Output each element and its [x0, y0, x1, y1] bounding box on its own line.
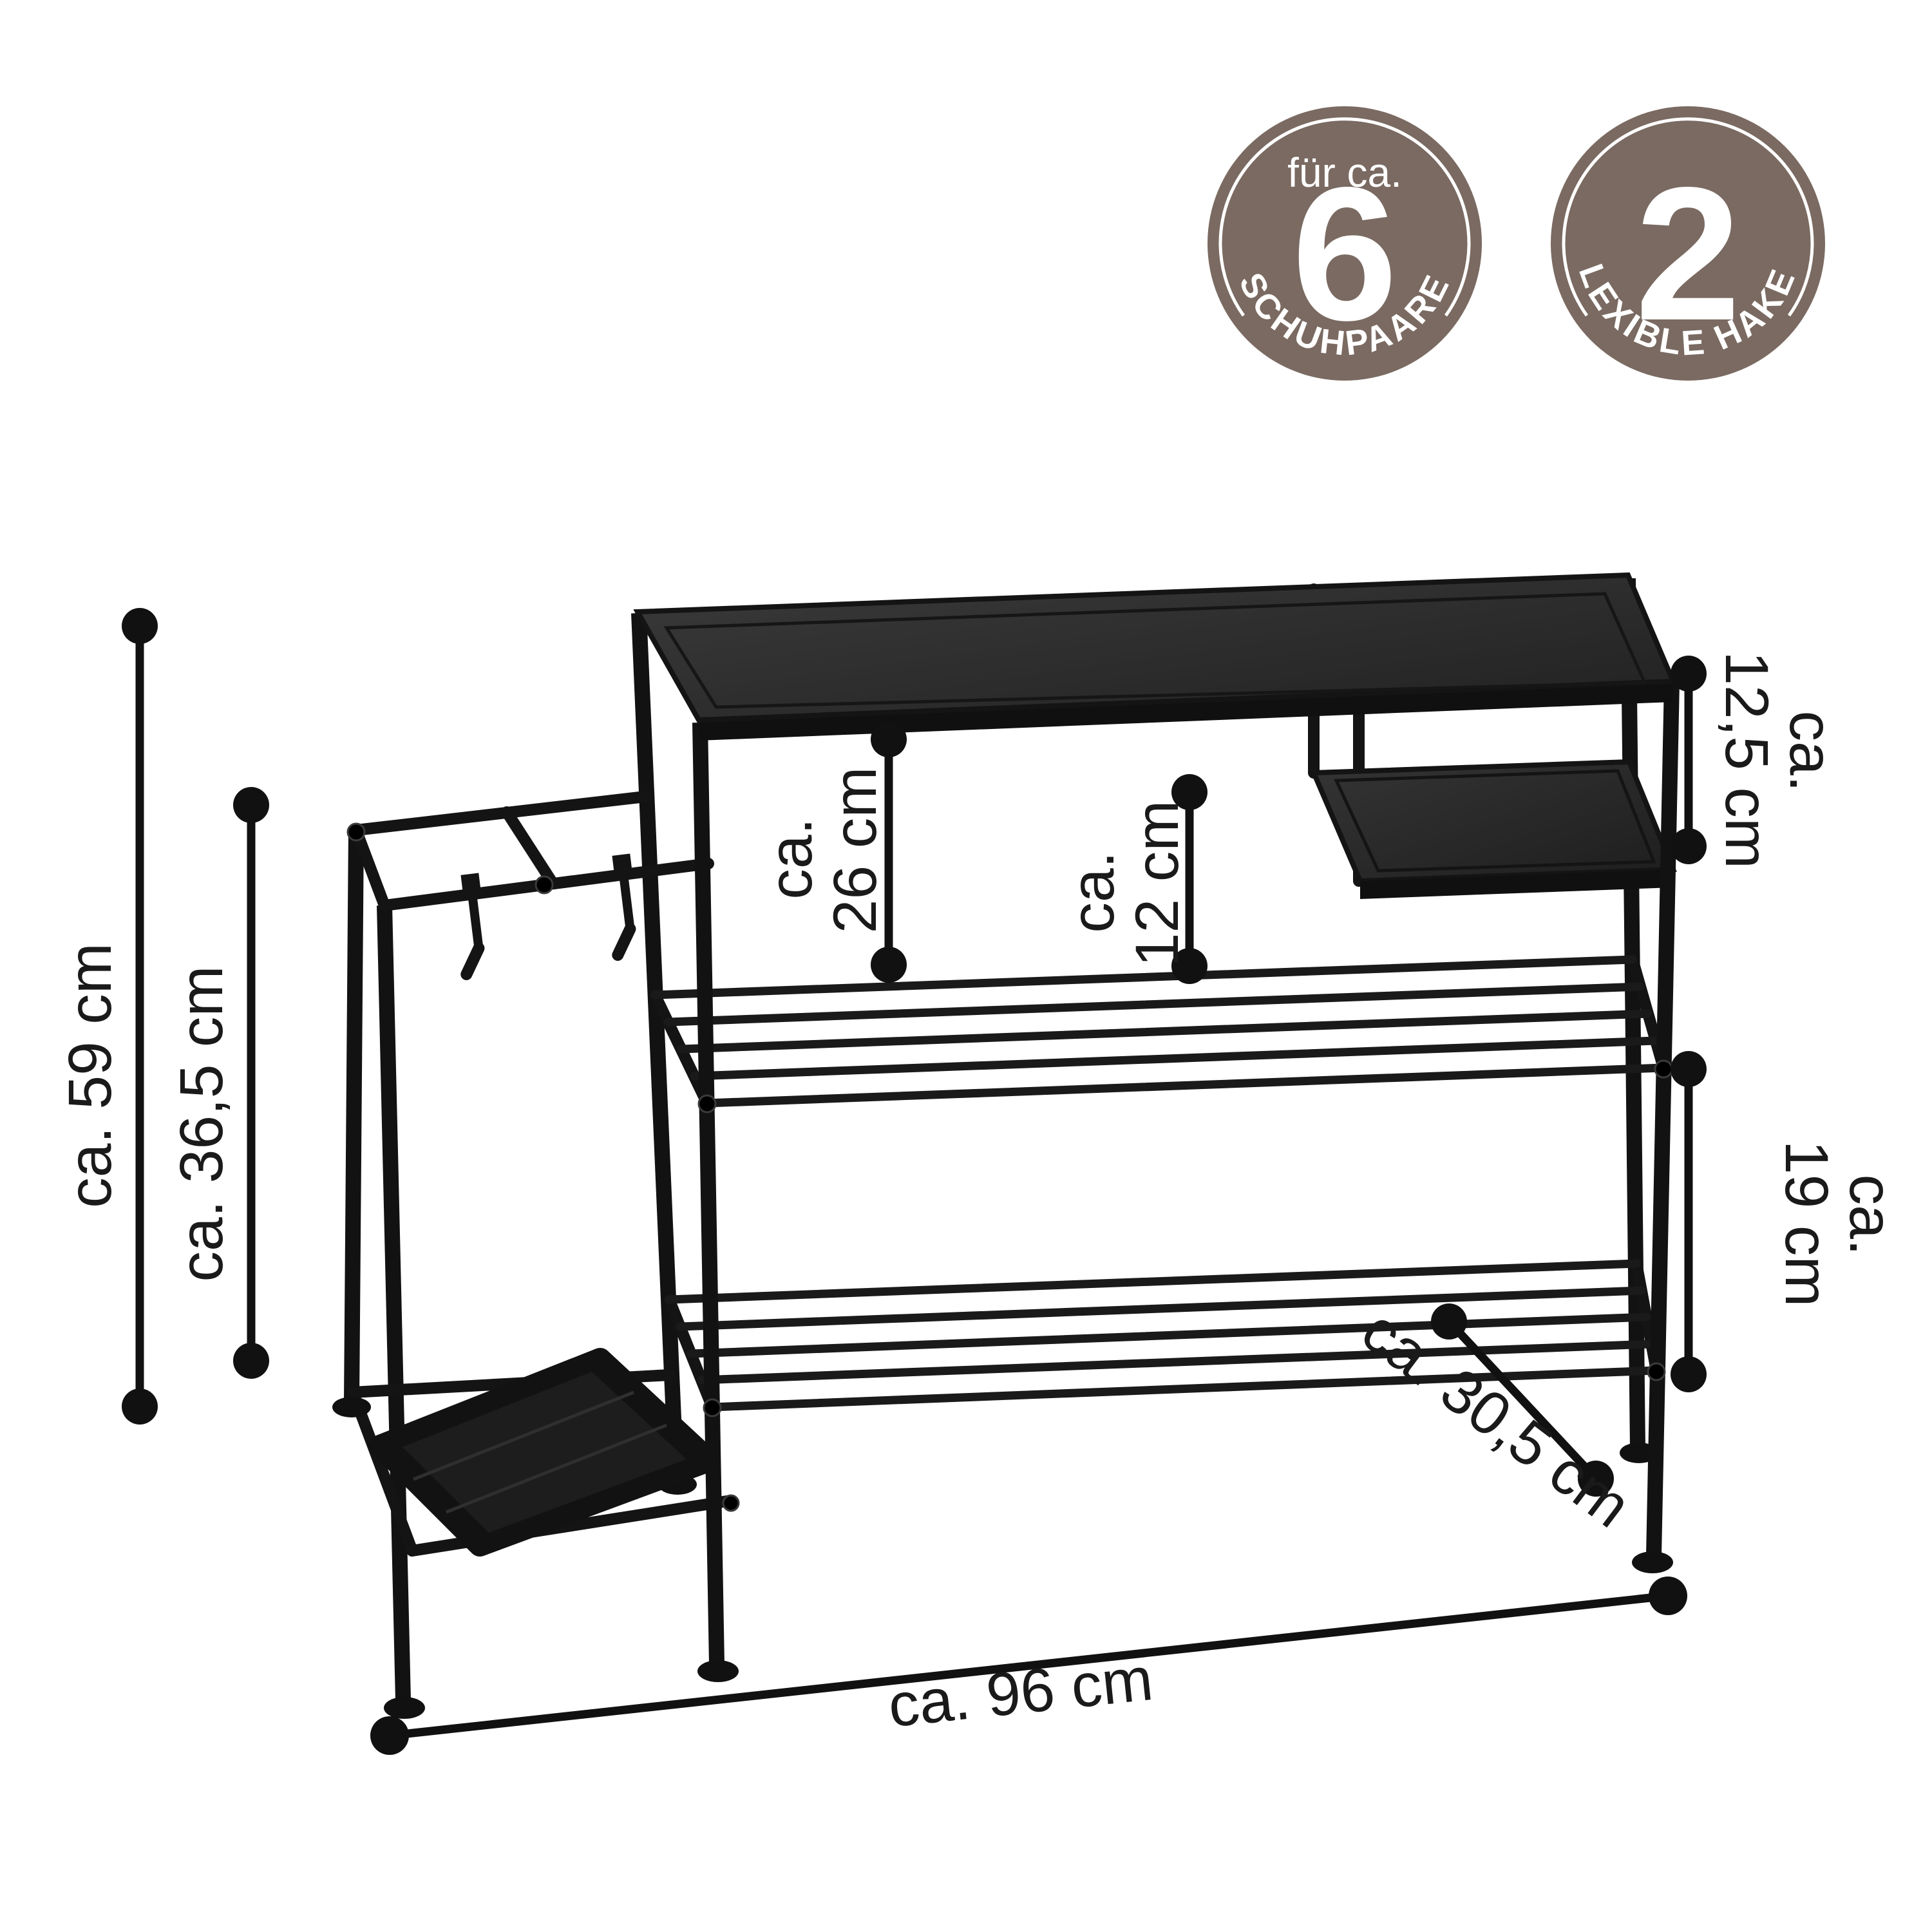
shelf-gap-label: ca. 19 cm [1772, 1141, 1905, 1307]
umbrella-stand [332, 797, 739, 1719]
side-shelf [1314, 762, 1673, 899]
stand-front-foot [384, 1697, 425, 1719]
bench-front-left-foot [697, 1660, 739, 1682]
bench-front-right-foot [1632, 1551, 1673, 1573]
leg-bolt [704, 1399, 721, 1416]
stand-back-foot [332, 1397, 371, 1417]
mid-clearance-label: ca. 12 cm [1059, 800, 1191, 967]
corner-bolt [348, 824, 365, 840]
leg-bolt [1655, 1061, 1672, 1077]
dimension-shelf-gap: ca. 19 cm [1671, 1051, 1905, 1392]
shoe-rack-illustration [332, 575, 1673, 1719]
side-shelf-height-label: ca. 12,5 cm [1712, 651, 1845, 869]
width-label: ca. 96 cm [885, 1645, 1156, 1740]
dimension-top-clearance: ca. 26 cm [757, 721, 907, 983]
depth-label: ca. 30,5 cm [1349, 1296, 1643, 1540]
rail-bolt [723, 1495, 739, 1511]
bench-front-left-leg [700, 723, 717, 1665]
dimension-width: ca. 96 cm [370, 1577, 1687, 1755]
stand-top-divider [507, 812, 553, 883]
bench-front-right-leg [1654, 683, 1672, 1555]
dimension-total-height: ca. 59 cm [56, 608, 158, 1425]
bench-top-panel [638, 575, 1673, 741]
leg-bolt [699, 1095, 715, 1112]
leg-bolt [1648, 1363, 1665, 1380]
dimension-mid-clearance: ca. 12 cm [1059, 774, 1207, 984]
bench-back-left-leg [639, 613, 676, 1478]
stand-top-back-rail [356, 797, 645, 830]
rail-bolt [536, 876, 553, 893]
top-clearance-label: ca. 26 cm [757, 767, 889, 934]
stand-back-left-leg [352, 830, 356, 1401]
product-dimension-sheet: ca. 59 cm ca. 36,5 cm ca. 26 cm ca. 12 c… [0, 0, 1932, 1932]
stand-front-left-leg [384, 905, 403, 1700]
dimension-depth: ca. 30,5 cm [1349, 1296, 1643, 1540]
shoe-rack-diagram: ca. 59 cm ca. 36,5 cm ca. 26 cm ca. 12 c… [0, 0, 1932, 1932]
flexible-hooks-badge: 2 FLEXIBLE HAKEN [1551, 106, 1825, 381]
wire-shelf-upper [655, 960, 1663, 1103]
stand-height-label: ca. 36,5 cm [167, 965, 236, 1282]
dimension-stand-height: ca. 36,5 cm [167, 787, 269, 1379]
total-height-label: ca. 59 cm [56, 943, 124, 1208]
shoe-pairs-badge: für ca. 6 SCHUHPAARE [1207, 106, 1482, 381]
dimension-side-shelf-height: ca. 12,5 cm [1671, 651, 1845, 869]
